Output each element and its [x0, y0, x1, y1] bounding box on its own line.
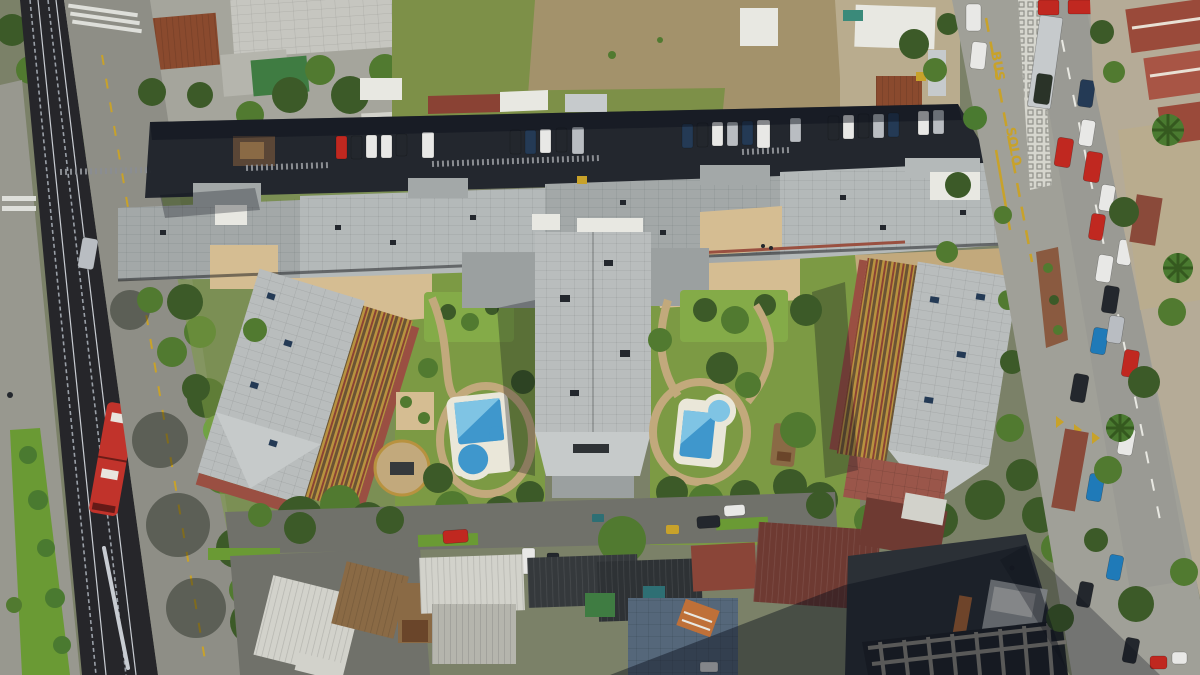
tree	[248, 503, 272, 527]
tree	[376, 506, 404, 534]
west-wing	[462, 252, 535, 308]
parked-car	[351, 136, 362, 159]
white-container	[500, 90, 548, 112]
wood-shed	[402, 620, 428, 642]
parked-car	[336, 136, 347, 159]
red-container	[428, 94, 500, 114]
parked-van	[422, 132, 434, 158]
shrub	[657, 37, 663, 43]
parked-car	[540, 129, 551, 153]
parked-van	[572, 127, 584, 154]
white-roof-patch	[532, 214, 560, 230]
pool-step	[489, 426, 504, 441]
north-annex	[700, 165, 770, 185]
palm-tree	[1152, 114, 1184, 146]
white-canopy	[360, 78, 402, 100]
kiosk-roof	[240, 142, 264, 159]
parked-car	[556, 128, 567, 152]
grass-patch	[392, 0, 535, 100]
parked-car	[724, 504, 746, 516]
tree	[648, 328, 672, 352]
dumpster	[592, 514, 604, 522]
tree	[735, 372, 761, 398]
roof-vent	[573, 444, 609, 453]
tree	[899, 29, 929, 59]
hip-section	[535, 432, 651, 476]
crosswalk	[2, 206, 36, 211]
maroon-roof-house	[691, 542, 757, 591]
bench	[777, 451, 792, 461]
aerial-photo: BUS SOLO	[0, 0, 1200, 675]
tree-shadow	[132, 412, 188, 468]
parked-car	[682, 124, 693, 148]
tree	[418, 358, 438, 378]
terrace-pit	[390, 462, 414, 475]
crosswalk	[2, 196, 36, 201]
parked-car	[697, 123, 708, 147]
parked-car	[1172, 652, 1187, 664]
car	[966, 4, 981, 31]
parked-car	[396, 134, 407, 156]
tree	[923, 58, 947, 82]
parked-car	[381, 135, 392, 158]
person	[761, 244, 765, 248]
palm-tree	[963, 106, 987, 130]
tree-shadow	[146, 493, 210, 557]
parked-car	[510, 130, 521, 154]
parked-car	[1150, 656, 1167, 669]
teal-tarp	[843, 10, 863, 21]
person	[769, 246, 773, 250]
tree	[423, 463, 453, 493]
yellow-machine	[666, 525, 679, 534]
tree	[994, 206, 1012, 224]
hedge-court	[396, 392, 434, 430]
north-annex	[408, 178, 468, 198]
tree	[284, 512, 316, 544]
parked-car	[443, 529, 469, 544]
tree	[945, 172, 971, 198]
palm-tree	[1106, 414, 1134, 442]
tree-shadow	[166, 578, 226, 638]
white-van-roof	[565, 94, 607, 112]
pedestrian	[7, 392, 13, 398]
car	[970, 41, 988, 69]
parked-car	[525, 130, 536, 154]
tree	[806, 491, 834, 519]
green-shed	[585, 593, 615, 617]
yellow-unit	[577, 176, 587, 184]
truck-cab	[1038, 0, 1059, 15]
tree	[706, 352, 738, 384]
shrub	[608, 51, 616, 59]
parked-car	[697, 515, 721, 529]
tree	[936, 241, 958, 263]
parked-car	[366, 135, 377, 158]
south-extension	[552, 476, 634, 498]
palm-tree	[1163, 253, 1193, 283]
concrete-pad	[740, 8, 778, 46]
